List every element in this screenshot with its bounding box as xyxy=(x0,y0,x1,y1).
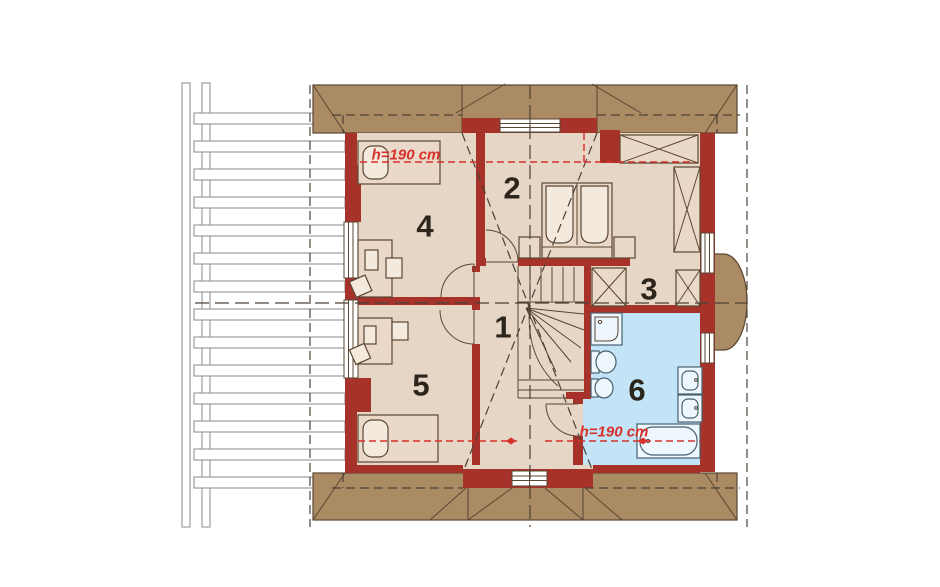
window-room4-left xyxy=(344,222,358,278)
wall-hall-west-a xyxy=(472,266,480,272)
window-bathroom-right xyxy=(701,333,714,363)
wardrobe-room3-right xyxy=(674,167,700,252)
wardrobe-room3-bottom-right xyxy=(676,270,700,306)
room-label-4: 4 xyxy=(416,209,434,244)
wall-exterior-bottom-right xyxy=(593,465,700,473)
pergola xyxy=(182,83,345,527)
wall-room4-room5 xyxy=(345,297,472,305)
room-label-6: 6 xyxy=(628,373,645,408)
wall-bathroom-left-a xyxy=(573,399,583,404)
pergola-beam xyxy=(194,421,345,432)
toilet xyxy=(591,351,616,373)
window-room5-left xyxy=(344,300,358,378)
nightstand-right xyxy=(614,237,635,258)
pergola-beam xyxy=(194,337,345,348)
pergola-beam xyxy=(194,197,345,208)
double-sink xyxy=(678,367,702,422)
wall-room4-room2 xyxy=(476,133,485,258)
wall-hall-north-a xyxy=(476,258,486,266)
pergola-beam xyxy=(194,281,345,292)
pergola-beam xyxy=(194,393,345,404)
wall-dormer-top-right xyxy=(559,118,597,133)
pillow-room5 xyxy=(363,420,388,457)
room-label-2: 2 xyxy=(503,171,520,206)
side-table-room4 xyxy=(386,258,402,278)
monitor-room5 xyxy=(364,326,376,344)
pergola-post xyxy=(182,83,190,527)
bidet xyxy=(591,378,613,398)
wall-pier-left-lower xyxy=(345,378,371,412)
pergola-beam xyxy=(194,365,345,376)
wall-exterior-bottom-left xyxy=(345,465,463,473)
side-table-room5 xyxy=(392,322,408,340)
wardrobe-room3-top xyxy=(620,135,698,163)
wardrobe-room3-nook xyxy=(592,268,626,306)
pergola-beam xyxy=(194,309,345,320)
pergola-beam xyxy=(194,225,345,236)
pergola-beam xyxy=(194,477,313,488)
floor-plan-canvas: 1 2 3 4 5 6 h=190 cm h=190 cm xyxy=(0,0,940,587)
wall-stair-bottom xyxy=(566,392,591,399)
pergola-beam xyxy=(194,449,345,460)
room-label-1: 1 xyxy=(494,310,511,345)
pergola-beam xyxy=(194,169,345,180)
wall-hall-north-b xyxy=(518,258,630,266)
wall-stair-east xyxy=(584,266,591,398)
pergola-beam xyxy=(194,141,345,152)
chimney-bay xyxy=(713,254,747,350)
room-label-5: 5 xyxy=(412,368,429,403)
wall-stub-top-right xyxy=(600,130,620,163)
height-annotation-bathroom: h=190 cm xyxy=(580,424,649,441)
wall-dormer-top-left xyxy=(462,118,501,133)
room-label-3: 3 xyxy=(640,272,657,307)
window-room3-right xyxy=(701,233,714,273)
height-annotation-top: h=190 cm xyxy=(372,147,441,164)
pergola-beam xyxy=(194,113,313,124)
monitor-room4 xyxy=(365,250,378,270)
shower xyxy=(591,313,622,345)
floor-plan-svg: 1 2 3 4 5 6 h=190 cm h=190 cm xyxy=(0,0,940,587)
pergola-beam xyxy=(194,253,345,264)
